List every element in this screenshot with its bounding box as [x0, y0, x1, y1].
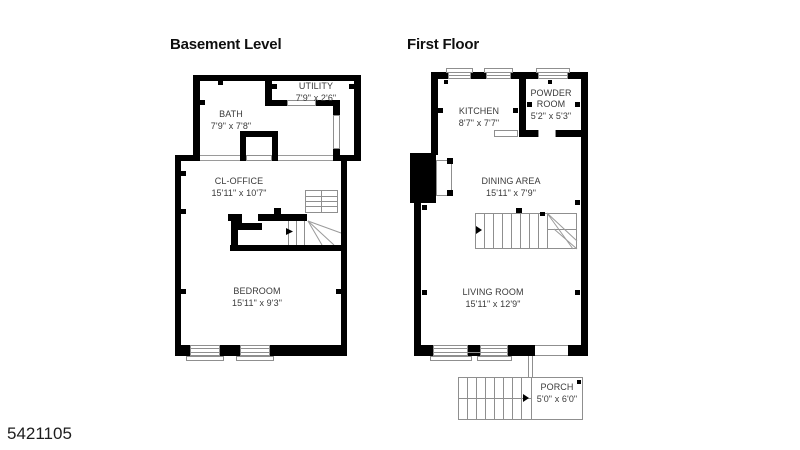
- room-name: LIVING ROOM: [462, 287, 523, 298]
- basement-windows: [187, 101, 340, 361]
- room-label-utility: UTILITY 7'9" x 2'6": [296, 81, 336, 104]
- room-dims: 8'7" x 7'7": [459, 118, 499, 129]
- first-floor-stairs-icon: [476, 213, 578, 249]
- floorplan-page: Basement Level First Floor BATH 7'9" x 7…: [0, 0, 800, 450]
- room-label-bath: BATH 7'9" x 7'8": [211, 109, 251, 132]
- room-label-kitchen: KITCHEN 8'7" x 7'7": [459, 106, 499, 129]
- room-name: DINING AREA: [481, 176, 540, 187]
- room-name: BEDROOM: [232, 286, 282, 297]
- basement-title: Basement Level: [170, 36, 281, 53]
- room-label-powder-room: POWDER ROOM 5'2" x 5'3": [520, 88, 582, 122]
- room-label-bedroom: BEDROOM 15'11" x 9'3": [232, 286, 282, 309]
- room-name: KITCHEN: [459, 106, 499, 117]
- basement-stair-direction-arrow: [286, 228, 293, 235]
- room-label-living-room: LIVING ROOM 15'11" x 12'9": [462, 287, 523, 310]
- room-dims: 15'11" x 7'9": [481, 188, 540, 199]
- room-dims: 5'0" x 6'0": [537, 394, 577, 405]
- room-dims: 7'9" x 2'6": [296, 93, 336, 104]
- room-name: POWDER ROOM: [520, 88, 582, 110]
- photo-id: 5421105: [7, 424, 72, 444]
- room-label-dining-area: DINING AREA 15'11" x 7'9": [481, 176, 540, 199]
- room-dims: 15'11" x 10'7": [211, 188, 266, 199]
- first-floor-winder-lines: [547, 213, 577, 249]
- basement-winder-lines: [308, 221, 341, 245]
- porch-direction-arrow: [523, 394, 529, 402]
- room-dims: 15'11" x 12'9": [462, 299, 523, 310]
- room-label-cl-office: CL-OFFICE 15'11" x 10'7": [211, 176, 266, 199]
- room-label-porch: PORCH 5'0" x 6'0": [537, 382, 577, 405]
- room-dims: 15'11" x 9'3": [232, 298, 282, 309]
- floorplan-drawing: [0, 0, 800, 450]
- room-dims: 5'2" x 5'3": [520, 111, 582, 122]
- room-name: UTILITY: [296, 81, 336, 92]
- room-name: CL-OFFICE: [211, 176, 266, 187]
- kitchen-counter: [495, 131, 518, 137]
- basement-plan: [175, 75, 361, 361]
- first-floor-stair-direction-arrow: [476, 226, 482, 234]
- room-name: PORCH: [537, 382, 577, 393]
- first-floor-title: First Floor: [407, 36, 479, 53]
- room-name: BATH: [211, 109, 251, 120]
- room-dims: 7'9" x 7'8": [211, 121, 251, 132]
